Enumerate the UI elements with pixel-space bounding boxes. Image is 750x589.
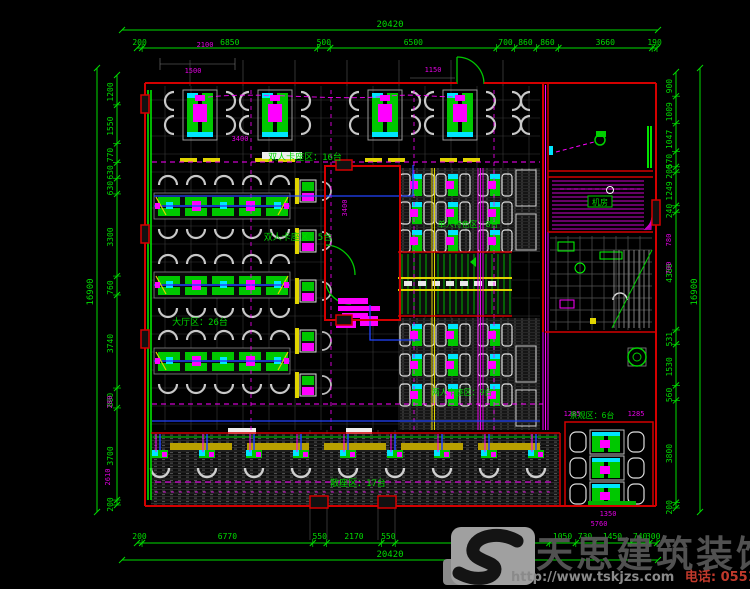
sub-dim-label: 5760	[591, 520, 608, 528]
dim-label: 6850	[220, 38, 239, 47]
sub-dim-label: 1285	[628, 410, 645, 418]
dim-label: 1450	[603, 532, 622, 541]
overall-width-label: 20420	[376, 550, 403, 560]
dim-label: 3300	[106, 227, 115, 246]
dim-label: 240	[665, 204, 674, 219]
dim-label: 3660	[596, 38, 615, 47]
dim-label: 550	[381, 532, 396, 541]
sub-dim-label: 2610	[104, 469, 112, 486]
sub-dim-label: 3400	[341, 200, 349, 217]
sub-dim-label: 1350	[600, 510, 617, 518]
dim-label: 500	[317, 38, 332, 47]
zone-label-scatter: 散座区：17台	[330, 477, 386, 489]
zone-label-single-feature: 单人特色区：8台	[438, 219, 499, 229]
zone-label-top-booth: 双人卡座区：16台	[268, 151, 342, 163]
dim-label: 860	[518, 38, 533, 47]
dim-label: 6770	[218, 532, 237, 541]
dim-label: 6500	[404, 38, 423, 47]
dim-label: 900	[665, 79, 674, 94]
zone-label-view: 景观区：6台	[570, 410, 615, 420]
dim-label: 6110	[463, 532, 482, 541]
sub-dim-label: 1500	[185, 67, 202, 75]
dim-label: 1009	[665, 102, 674, 121]
dim-label: 1200	[106, 82, 115, 101]
dim-label: 200	[106, 497, 115, 512]
dim-label: 860	[540, 38, 555, 47]
dim-label: 730	[578, 532, 593, 541]
dim-label: 770	[106, 148, 115, 163]
dim-label: 1249	[665, 181, 674, 200]
dim-label: 630	[106, 165, 115, 180]
dim-label: 300	[646, 532, 661, 541]
dim-label: 630	[106, 181, 115, 196]
dim-label: 1047	[665, 130, 674, 149]
cad-drawing-viewport: 2042020068505006500700860860366019020067…	[0, 0, 750, 589]
dim-label: 531	[665, 332, 674, 347]
dim-label: 200	[132, 532, 147, 541]
dim-label: 2170	[344, 532, 363, 541]
sub-dim-label: 280	[106, 396, 114, 409]
dim-label: 200	[132, 38, 147, 47]
zone-label-left-booth-small: 双人卡座区：5台	[264, 231, 332, 243]
dim-label: 190	[647, 38, 662, 47]
dim-label: 1550	[106, 116, 115, 135]
overall-height-label: 16900	[86, 278, 96, 305]
dim-label: 3800	[665, 444, 674, 463]
sub-dim-label: 780	[665, 234, 673, 247]
sub-dim-label: 700	[665, 262, 673, 275]
zone-label-machine-room: 机房	[592, 197, 608, 207]
overall-height-label: 16900	[690, 278, 700, 305]
overall-width-label: 20420	[376, 20, 403, 30]
dim-label: 760	[106, 280, 115, 295]
sub-dim-label: 2100	[197, 41, 214, 49]
dim-label: 550	[312, 532, 327, 541]
zone-label-hall: 大厅区：26台	[172, 316, 228, 328]
zone-label-two-person: 两人卡座区：9台	[432, 387, 493, 397]
dim-label: 700	[498, 38, 513, 47]
sub-dim-label: 3400	[232, 135, 249, 143]
dim-label: 200	[665, 164, 674, 179]
dim-label: 3740	[106, 334, 115, 353]
dim-label: 200	[665, 500, 674, 515]
dim-label: 3700	[106, 446, 115, 465]
dim-label: 1530	[665, 357, 674, 376]
floor-plan-canvas: 2042020068505006500700860860366019020067…	[0, 0, 750, 589]
dim-label: 560	[665, 388, 674, 403]
dim-label: 1050	[553, 532, 572, 541]
sub-dim-label: 1150	[425, 66, 442, 74]
